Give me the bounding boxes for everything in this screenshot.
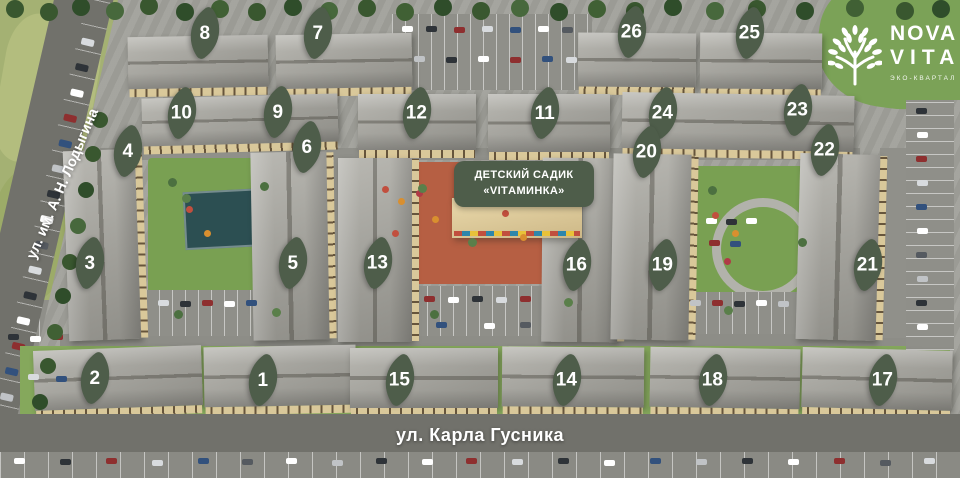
building-block-20-19 bbox=[610, 153, 691, 340]
parked-cars-bottom-strip bbox=[14, 458, 25, 464]
masterplan-render: 8726251091211242346202235131619212115141… bbox=[0, 0, 960, 478]
parked-cars-right-lot bbox=[690, 300, 701, 306]
building-block-10-9 bbox=[141, 93, 338, 146]
parking-lot-courtyard-right bbox=[680, 292, 802, 334]
kindergarten-label: ДЕТСКИЙ САДИК «VITАМИНКА» bbox=[454, 161, 594, 207]
building-block-6-5 bbox=[250, 151, 329, 340]
kindergarten-label-line2: «VITАМИНКА» bbox=[458, 184, 590, 200]
building-block-13 bbox=[338, 158, 412, 342]
building-block-15 bbox=[350, 348, 498, 408]
building-block-2 bbox=[33, 345, 203, 411]
parked-cars-bottom-left-lot bbox=[8, 334, 19, 340]
parked-cars-left-lot bbox=[158, 300, 169, 306]
tree-line-top bbox=[6, 0, 24, 18]
brand-logo-text: NOVA VITA ЭКО-КВАРТАЛ bbox=[890, 22, 960, 82]
building-block-22-21 bbox=[796, 153, 881, 341]
building-block-1 bbox=[203, 345, 356, 408]
building-block-17 bbox=[801, 347, 953, 411]
kindergarten-label-line1: ДЕТСКИЙ САДИК bbox=[458, 168, 590, 184]
parked-cars-right-edge bbox=[916, 108, 927, 114]
brand-logo: NOVA VITA ЭКО-КВАРТАЛ bbox=[828, 22, 960, 86]
parked-cars-top-lot bbox=[402, 26, 413, 32]
parking-lot-right-edge bbox=[906, 100, 954, 350]
building-block-11 bbox=[488, 94, 610, 152]
building-block-18 bbox=[649, 347, 800, 410]
building-block-14 bbox=[502, 346, 645, 407]
brand-subtitle: ЭКО-КВАРТАЛ bbox=[890, 75, 960, 82]
parking-lot-top-middle bbox=[392, 14, 592, 90]
tree-logo-icon bbox=[828, 22, 882, 86]
brand-name-line1: NOVA bbox=[890, 22, 960, 46]
building-block-7 bbox=[276, 33, 413, 89]
building-block-12 bbox=[358, 94, 476, 150]
building-block-4-3 bbox=[63, 149, 142, 341]
bottom-parking-strip bbox=[0, 452, 960, 478]
building-block-26 bbox=[578, 32, 696, 87]
building-block-8 bbox=[128, 35, 269, 89]
parking-lot-courtyard-left bbox=[146, 290, 270, 336]
courtyard-bushes bbox=[168, 178, 177, 187]
parked-cars-middle-lot bbox=[424, 296, 435, 302]
building-block-24-23 bbox=[622, 92, 855, 152]
parked-cars-right-courtyard bbox=[706, 218, 717, 224]
brand-name-line2: VITA bbox=[890, 46, 960, 70]
kindergarten-facade-stripes bbox=[454, 231, 580, 236]
building-block-25 bbox=[700, 32, 822, 89]
parking-lot-courtyard-middle bbox=[414, 286, 554, 336]
street-name-karla-gusnika: ул. Карла Гусника bbox=[330, 425, 630, 446]
playground-equipment bbox=[382, 186, 389, 193]
